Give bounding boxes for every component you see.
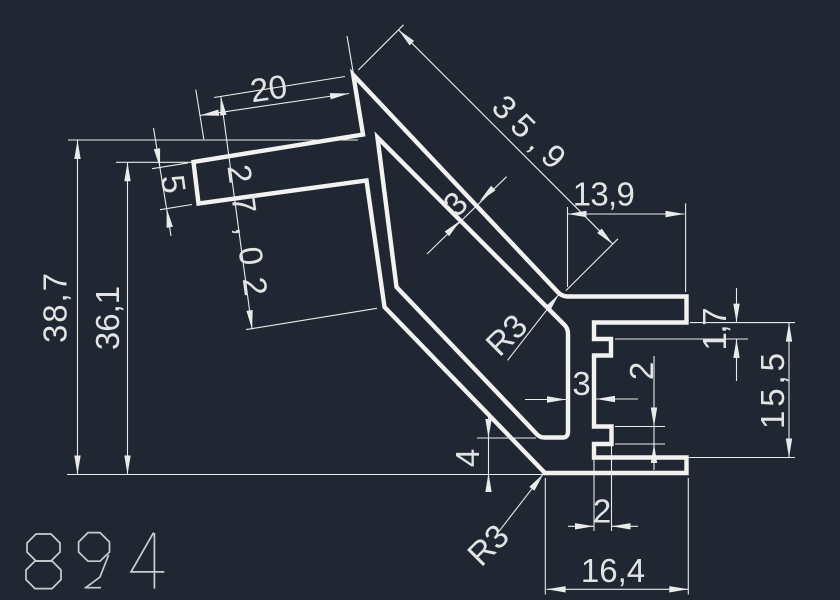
- svg-text:3: 3: [572, 365, 590, 402]
- svg-text:36,1: 36,1: [89, 286, 126, 350]
- svg-text:2: 2: [623, 362, 660, 380]
- svg-text:1,7: 1,7: [696, 308, 733, 351]
- svg-text:15,5: 15,5: [754, 353, 791, 429]
- svg-text:38,7: 38,7: [36, 273, 73, 343]
- svg-text:16,4: 16,4: [581, 552, 645, 589]
- svg-text:13,9: 13,9: [573, 176, 635, 213]
- svg-text:4: 4: [449, 449, 486, 467]
- svg-text:20: 20: [248, 67, 290, 109]
- svg-text:2: 2: [593, 492, 611, 529]
